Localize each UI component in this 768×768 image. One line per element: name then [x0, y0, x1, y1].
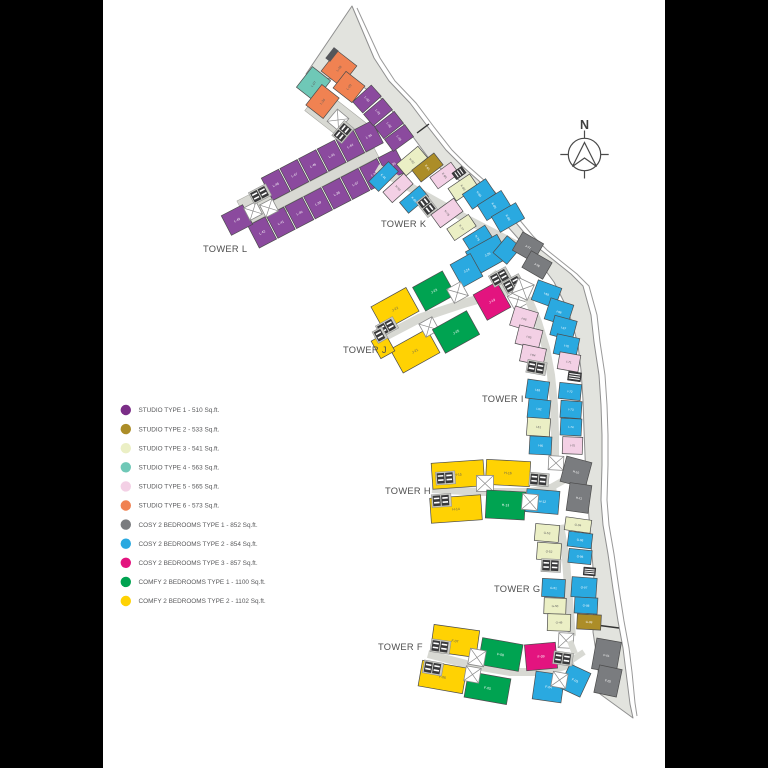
svg-text:N: N	[580, 118, 589, 132]
svg-text:G-51: G-51	[550, 586, 557, 590]
svg-text:G-95: G-95	[576, 538, 583, 543]
svg-text:G-99: G-99	[586, 620, 593, 624]
svg-text:STUDIO TYPE 2 - 533 Sq.ft.: STUDIO TYPE 2 - 533 Sq.ft.	[139, 426, 220, 433]
svg-text:STUDIO TYPE 6 - 573 Sq.ft.: STUDIO TYPE 6 - 573 Sq.ft.	[139, 503, 220, 510]
svg-text:G-50: G-50	[552, 604, 559, 608]
svg-text:TOWER J: TOWER J	[343, 345, 387, 355]
svg-text:G-49: G-49	[556, 620, 563, 624]
svg-text:G-52: G-52	[546, 549, 553, 553]
svg-text:I-72: I-72	[567, 389, 573, 394]
svg-text:I-75: I-75	[570, 443, 576, 447]
svg-text:COMFY 2 BEDROOMS TYPE 1 - 1100: COMFY 2 BEDROOMS TYPE 1 - 1100 Sq.ft.	[139, 579, 266, 586]
svg-text:STUDIO TYPE 4 - 563 Sq.ft.: STUDIO TYPE 4 - 563 Sq.ft.	[139, 465, 220, 472]
svg-text:TOWER F: TOWER F	[378, 642, 423, 652]
svg-text:STUDIO TYPE 3 - 541 Sq.ft.: STUDIO TYPE 3 - 541 Sq.ft.	[139, 445, 220, 452]
svg-text:COMFY 2 BEDROOMS TYPE 2 - 1102: COMFY 2 BEDROOMS TYPE 2 - 1102 Sq.ft.	[139, 598, 266, 605]
svg-text:TOWER H: TOWER H	[385, 486, 431, 496]
svg-text:I-62: I-62	[536, 407, 542, 412]
svg-text:STUDIO TYPE 5 - 565 Sq.ft.: STUDIO TYPE 5 - 565 Sq.ft.	[139, 484, 220, 491]
svg-text:G-98: G-98	[583, 603, 590, 607]
svg-text:TOWER L: TOWER L	[203, 244, 247, 254]
svg-text:STUDIO TYPE 1 - 510 Sq.ft.: STUDIO TYPE 1 - 510 Sq.ft.	[139, 407, 220, 414]
svg-text:I-63: I-63	[535, 388, 541, 393]
svg-text:H-12: H-12	[539, 499, 546, 504]
svg-text:H-16: H-16	[504, 471, 512, 475]
svg-text:G-53: G-53	[543, 531, 550, 536]
svg-text:H-13: H-13	[502, 503, 510, 507]
svg-text:COSY 2 BEDROOMS TYPE 2 - 854 S: COSY 2 BEDROOMS TYPE 2 - 854 Sq.ft.	[139, 541, 258, 548]
svg-text:TOWER K: TOWER K	[381, 219, 427, 229]
svg-text:H-14: H-14	[452, 507, 460, 512]
svg-text:COSY 2 BEDROOMS TYPE 3 - 857 S: COSY 2 BEDROOMS TYPE 3 - 857 Sq.ft.	[139, 560, 258, 567]
svg-text:TOWER G: TOWER G	[494, 584, 540, 594]
svg-text:I-60: I-60	[538, 443, 544, 447]
svg-text:TOWER I: TOWER I	[482, 394, 524, 404]
svg-text:I-73: I-73	[568, 407, 574, 411]
svg-text:I-74: I-74	[568, 425, 574, 429]
svg-text:F-09: F-09	[537, 654, 544, 659]
svg-text:G-96: G-96	[576, 554, 583, 559]
svg-text:I-61: I-61	[536, 425, 542, 429]
svg-text:G-97: G-97	[581, 585, 588, 589]
svg-text:COSY 2 BEDROOMS TYPE 1 - 852 S: COSY 2 BEDROOMS TYPE 1 - 852 Sq.ft.	[139, 522, 258, 529]
